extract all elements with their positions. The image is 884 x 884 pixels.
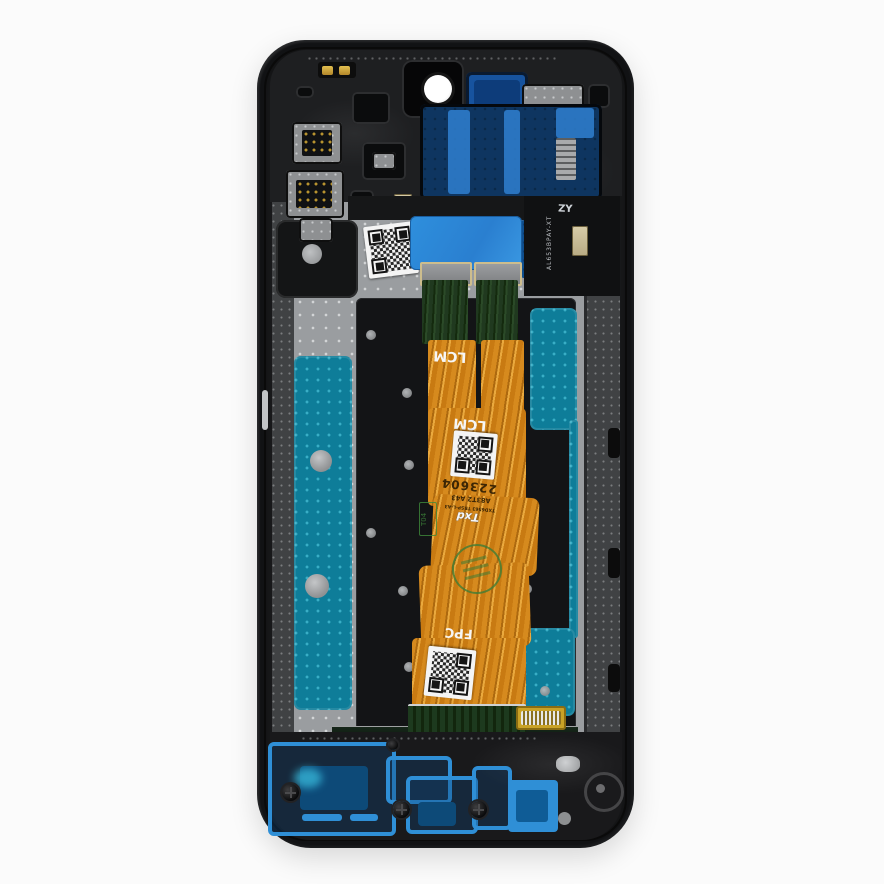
board-connector — [516, 706, 566, 730]
flex-pcb-tail — [422, 280, 468, 344]
chassis-cutout — [296, 86, 314, 98]
flex-cable — [481, 340, 524, 416]
frame-code-text: AL653BPAY-XT — [546, 198, 558, 270]
qr-eye — [371, 258, 388, 275]
screw — [393, 801, 410, 818]
motor-seat-dot — [596, 784, 605, 793]
solder-blob — [556, 756, 580, 772]
plate-dot — [402, 388, 412, 398]
lcm-print: LCM — [432, 343, 469, 365]
screw-boss — [302, 244, 322, 264]
shield-pad — [556, 138, 576, 180]
screw — [388, 740, 398, 750]
adhesive-strip — [448, 110, 470, 194]
shield-window — [372, 152, 396, 170]
motor-seat-ring — [584, 772, 624, 812]
adhesive-highlight — [294, 768, 322, 788]
qr-eye — [456, 653, 472, 669]
adhesive-strip — [556, 108, 594, 138]
qr-eye — [367, 229, 384, 246]
adhesive-opening — [305, 574, 329, 598]
camera-hole — [424, 75, 452, 103]
connector-pins — [521, 711, 561, 725]
shield-window — [299, 218, 333, 242]
qr-eye — [394, 226, 411, 243]
qc-stamp-box: T04 — [419, 502, 437, 536]
adhesive-pad-right-bottom — [523, 628, 575, 716]
frame-notch — [608, 428, 620, 458]
plate-dot — [404, 460, 414, 470]
adhesive-block-inner — [516, 790, 548, 822]
qr-eye — [477, 436, 493, 452]
fpc-print: FPC — [441, 619, 476, 641]
adhesive-pad-right-top — [530, 308, 577, 430]
adhesive-strip — [504, 110, 520, 194]
qr-eye — [453, 679, 469, 695]
frame-notch — [608, 548, 620, 578]
qr-sticker-flex-mid — [450, 430, 498, 480]
product-photo: AL653BPAY-XT ZY LCM LCM 223604 A83T2 A43… — [0, 0, 884, 884]
frame-notch — [608, 664, 620, 692]
contact-grid — [296, 180, 332, 208]
flex-pcb-tail — [476, 280, 518, 344]
plate-dot — [540, 686, 550, 696]
qr-eye — [475, 459, 491, 475]
adhesive-strip-right — [569, 420, 578, 638]
qr-eye — [454, 457, 470, 473]
contact-grid — [302, 130, 332, 156]
side-button-slot — [262, 390, 268, 430]
adhesive-pad-left — [294, 356, 352, 710]
gold-contact — [322, 66, 333, 75]
qr-eye — [428, 677, 444, 693]
adhesive-bar — [302, 814, 342, 821]
connector-socket — [572, 226, 588, 256]
adhesive-bar — [350, 814, 378, 821]
adhesive-opening — [310, 450, 332, 472]
frame-label-text: ZY — [558, 204, 584, 217]
adhesive-inner — [418, 802, 456, 826]
plate-dot — [366, 330, 376, 340]
brand-logo-print: Txd — [451, 508, 484, 525]
plate-dot — [398, 586, 408, 596]
screw — [282, 784, 299, 801]
adhesive-outline — [472, 766, 512, 830]
screw — [470, 801, 487, 818]
chassis-cutout — [352, 92, 390, 124]
gold-contact — [339, 66, 350, 75]
plate-dot — [366, 528, 376, 538]
screw-boss — [558, 812, 571, 825]
qr-sticker-flex-bottom — [424, 646, 477, 701]
